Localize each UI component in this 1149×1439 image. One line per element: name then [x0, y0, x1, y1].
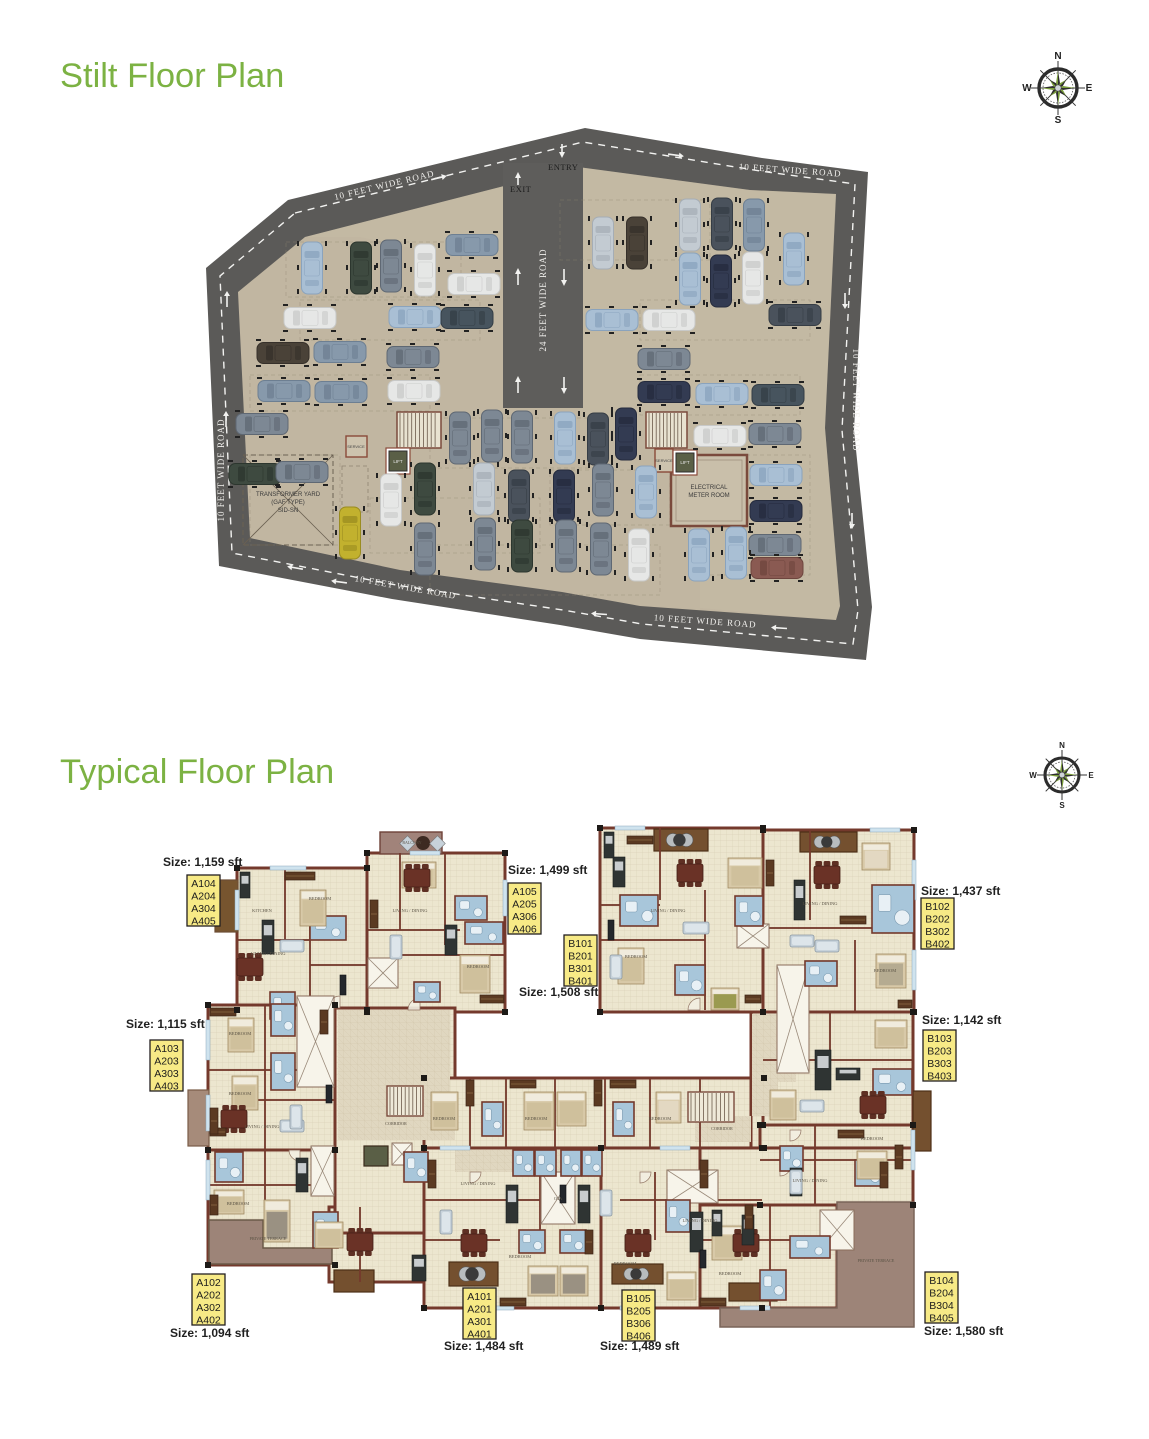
svg-text:A403: A403: [154, 1080, 179, 1092]
svg-text:KITCHEN: KITCHEN: [252, 908, 272, 913]
svg-text:W: W: [1029, 771, 1037, 780]
svg-text:EXIT: EXIT: [510, 184, 532, 194]
svg-text:B103: B103: [927, 1033, 952, 1045]
svg-text:A103: A103: [154, 1043, 179, 1055]
svg-text:Size: 1,580 sft: Size: 1,580 sft: [924, 1324, 1003, 1338]
svg-text:A101: A101: [467, 1291, 492, 1303]
svg-text:A102: A102: [196, 1277, 221, 1289]
svg-text:BEDROOM: BEDROOM: [874, 968, 897, 973]
svg-text:Stilt Floor Plan: Stilt Floor Plan: [60, 57, 284, 95]
svg-text:A104: A104: [191, 878, 216, 890]
svg-text:A306: A306: [512, 911, 537, 923]
svg-text:Size: 1,115 sft: Size: 1,115 sft: [126, 1017, 205, 1031]
svg-text:Size: 1,499 sft: Size: 1,499 sft: [508, 863, 587, 877]
svg-text:METER ROOM: METER ROOM: [688, 493, 729, 499]
svg-text:LIVING / DINING: LIVING / DINING: [803, 901, 839, 906]
svg-text:W: W: [1022, 83, 1032, 94]
svg-text:BEDROOM: BEDROOM: [467, 964, 490, 969]
svg-text:(GAF TYPE): (GAF TYPE): [271, 500, 305, 506]
svg-text:LIVING / DINING: LIVING / DINING: [793, 1178, 829, 1183]
svg-text:BEDROOM: BEDROOM: [525, 1116, 548, 1121]
svg-text:A405: A405: [191, 915, 216, 927]
svg-text:A205: A205: [512, 899, 537, 911]
svg-text:A201: A201: [467, 1304, 492, 1316]
svg-text:N: N: [1059, 741, 1065, 750]
svg-text:LIVING / DINING: LIVING / DINING: [461, 1181, 497, 1186]
svg-text:B402: B402: [925, 938, 950, 950]
svg-text:BEDROOM: BEDROOM: [614, 1261, 637, 1266]
svg-text:B303: B303: [927, 1058, 952, 1070]
svg-text:A301: A301: [467, 1316, 492, 1328]
svg-text:E: E: [1086, 83, 1093, 94]
svg-text:LIVING / DINING: LIVING / DINING: [651, 908, 687, 913]
svg-text:LIVING / DINING: LIVING / DINING: [251, 951, 287, 956]
svg-text:A204: A204: [191, 891, 216, 903]
svg-text:BEDROOM: BEDROOM: [229, 1031, 252, 1036]
svg-text:TRANSFORMER YARD: TRANSFORMER YARD: [256, 492, 321, 498]
svg-text:BEDROOM: BEDROOM: [509, 1254, 532, 1259]
svg-text:A402: A402: [196, 1314, 221, 1326]
svg-text:Size: 1,142 sft: Size: 1,142 sft: [922, 1013, 1001, 1027]
svg-text:Typical Floor Plan: Typical Floor Plan: [60, 753, 334, 791]
svg-text:N: N: [1054, 51, 1061, 62]
svg-text:Size: 1,484 sft: Size: 1,484 sft: [444, 1339, 523, 1353]
svg-text:Size: 1,489 sft: Size: 1,489 sft: [600, 1339, 679, 1353]
svg-text:SERVICE: SERVICE: [655, 458, 673, 463]
svg-text:B105: B105: [626, 1293, 651, 1305]
svg-text:LIFT: LIFT: [393, 459, 403, 464]
svg-text:BEDROOM: BEDROOM: [227, 1201, 250, 1206]
svg-text:SID-SN: SID-SN: [278, 508, 298, 514]
svg-text:B204: B204: [929, 1288, 954, 1300]
svg-text:A406: A406: [512, 923, 537, 935]
svg-text:E: E: [1088, 771, 1094, 780]
svg-text:A304: A304: [191, 903, 216, 915]
svg-text:LIVING / DINING: LIVING / DINING: [393, 908, 429, 913]
svg-text:B301: B301: [568, 963, 593, 975]
svg-text:BALCONY: BALCONY: [402, 840, 421, 845]
svg-text:A303: A303: [154, 1068, 179, 1080]
svg-text:Size: 1,437 sft: Size: 1,437 sft: [921, 884, 1000, 898]
svg-text:B203: B203: [927, 1046, 952, 1058]
svg-text:S: S: [1059, 801, 1065, 810]
svg-text:B302: B302: [925, 926, 950, 938]
svg-text:CORRIDOR: CORRIDOR: [385, 1121, 407, 1126]
svg-text:OTA: OTA: [554, 1196, 562, 1201]
svg-text:Size: 1,159 sft: Size: 1,159 sft: [163, 855, 242, 869]
svg-text:LIVING / DINING: LIVING / DINING: [245, 1124, 281, 1129]
svg-text:BEDROOM: BEDROOM: [649, 1116, 672, 1121]
svg-text:B104: B104: [929, 1275, 954, 1287]
svg-text:ENTRY: ENTRY: [548, 162, 578, 172]
svg-text:A302: A302: [196, 1302, 221, 1314]
svg-text:B205: B205: [626, 1306, 651, 1318]
svg-text:Size: 1,094 sft: Size: 1,094 sft: [170, 1326, 249, 1340]
svg-text:A202: A202: [196, 1290, 221, 1302]
svg-text:B102: B102: [925, 901, 950, 913]
svg-text:B304: B304: [929, 1300, 954, 1312]
svg-text:SERVICE: SERVICE: [347, 444, 365, 449]
svg-text:ELECTRICAL: ELECTRICAL: [690, 485, 728, 491]
svg-text:CORRIDOR: CORRIDOR: [711, 1126, 733, 1131]
svg-text:24 FEET WIDE ROAD: 24 FEET WIDE ROAD: [538, 249, 548, 352]
svg-text:BEDROOM: BEDROOM: [309, 896, 332, 901]
svg-text:B201: B201: [568, 951, 593, 963]
svg-text:Size: 1,508 sft: Size: 1,508 sft: [519, 985, 598, 999]
svg-text:BEDROOM: BEDROOM: [229, 1091, 252, 1096]
svg-text:BEDROOM: BEDROOM: [719, 1271, 742, 1276]
svg-text:B405: B405: [929, 1312, 954, 1324]
svg-text:10 FEET WIDE ROAD: 10 FEET WIDE ROAD: [851, 349, 861, 452]
svg-text:BEDROOM: BEDROOM: [625, 954, 648, 959]
svg-text:PRIVATE TERRACE: PRIVATE TERRACE: [858, 1258, 895, 1263]
svg-text:LIVING / DINING: LIVING / DINING: [683, 1218, 719, 1223]
svg-text:B306: B306: [626, 1318, 651, 1330]
svg-text:B202: B202: [925, 914, 950, 926]
svg-text:B101: B101: [568, 938, 593, 950]
svg-text:10 FEET WIDE ROAD: 10 FEET WIDE ROAD: [216, 419, 226, 522]
svg-text:BEDROOM: BEDROOM: [433, 1116, 456, 1121]
svg-text:B403: B403: [927, 1070, 952, 1082]
svg-text:BEDROOM: BEDROOM: [861, 1136, 884, 1141]
svg-text:A105: A105: [512, 886, 537, 898]
svg-text:S: S: [1055, 115, 1062, 126]
svg-text:A203: A203: [154, 1056, 179, 1068]
svg-text:PRIVATE TERRACE: PRIVATE TERRACE: [250, 1236, 287, 1241]
svg-text:LIFT: LIFT: [680, 460, 690, 465]
